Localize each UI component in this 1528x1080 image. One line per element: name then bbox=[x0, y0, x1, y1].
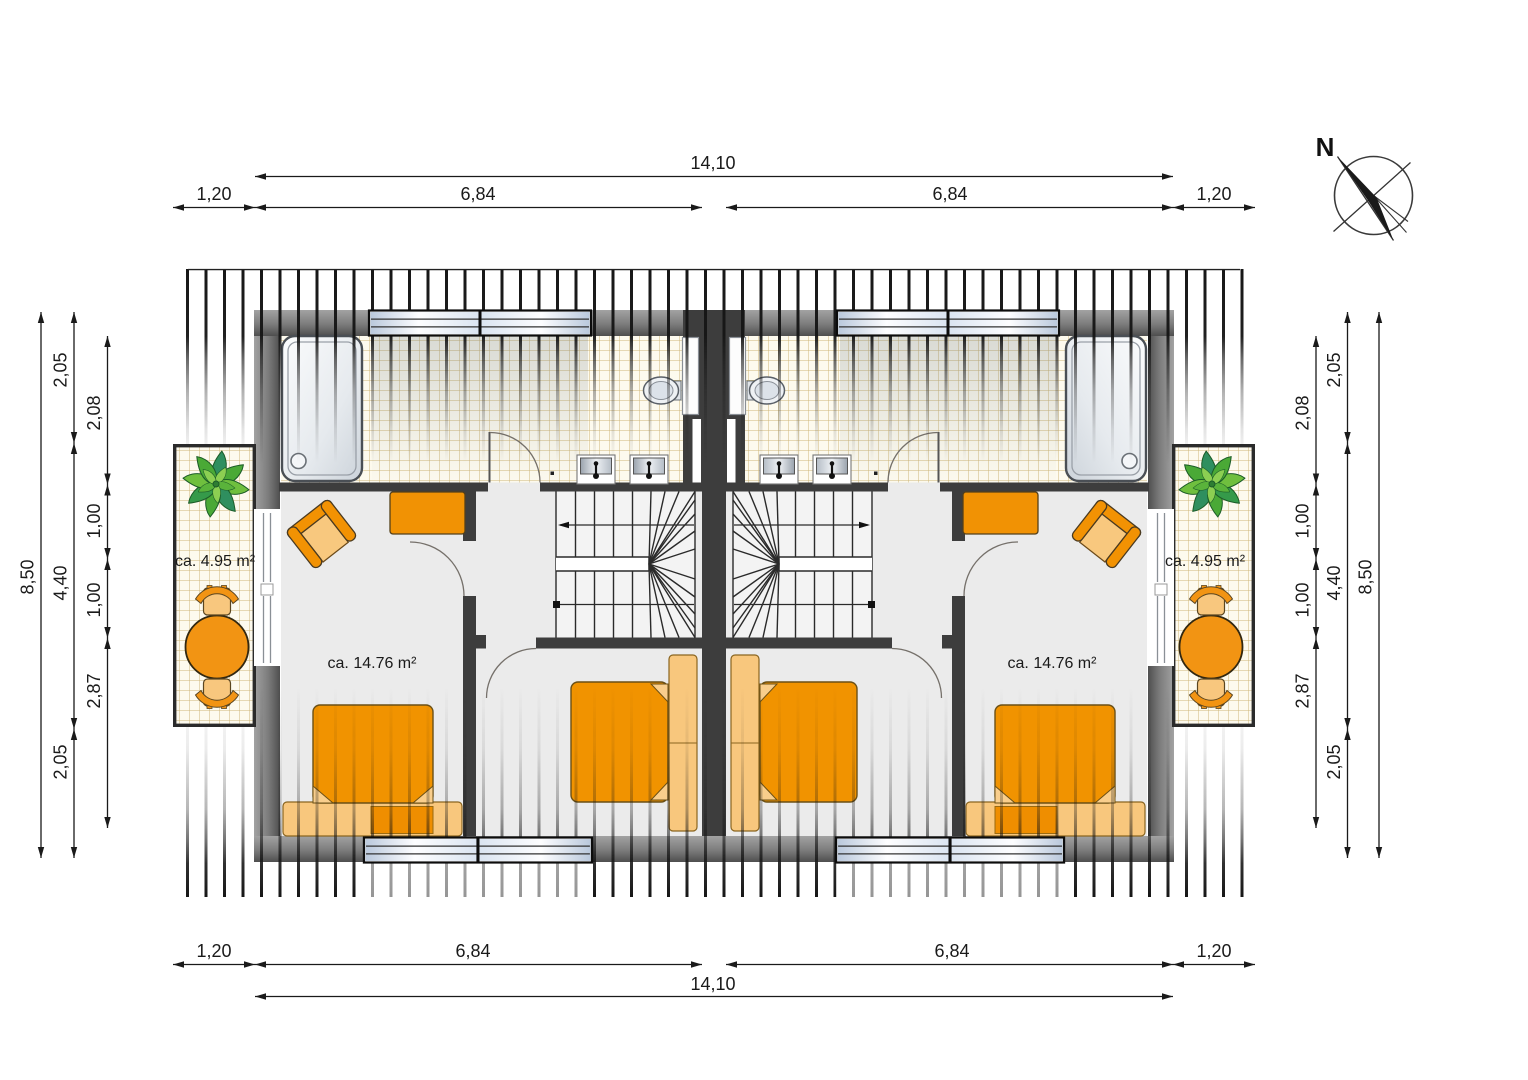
svg-text:2,87: 2,87 bbox=[84, 673, 104, 708]
svg-text:N: N bbox=[1316, 132, 1335, 162]
svg-text:6,84: 6,84 bbox=[932, 184, 967, 204]
svg-text:1,00: 1,00 bbox=[1293, 582, 1313, 617]
svg-text:2,08: 2,08 bbox=[84, 395, 104, 430]
svg-text:2,05: 2,05 bbox=[51, 352, 71, 387]
svg-text:6,84: 6,84 bbox=[455, 941, 490, 961]
svg-text:1,20: 1,20 bbox=[196, 184, 231, 204]
svg-text:8,50: 8,50 bbox=[1356, 559, 1376, 594]
svg-text:2,87: 2,87 bbox=[1293, 673, 1313, 708]
svg-text:ca. 4.95 m²: ca. 4.95 m² bbox=[1165, 553, 1246, 570]
svg-text:1,20: 1,20 bbox=[196, 941, 231, 961]
svg-text:14,10: 14,10 bbox=[690, 153, 735, 173]
svg-text:2,05: 2,05 bbox=[51, 744, 71, 779]
svg-text:2,08: 2,08 bbox=[1293, 395, 1313, 430]
svg-text:6,84: 6,84 bbox=[460, 184, 495, 204]
svg-text:6,84: 6,84 bbox=[934, 941, 969, 961]
svg-text:ca. 14.76 m²: ca. 14.76 m² bbox=[1008, 655, 1098, 672]
svg-text:1,00: 1,00 bbox=[1293, 503, 1313, 538]
svg-text:ca. 14.76 m²: ca. 14.76 m² bbox=[328, 655, 418, 672]
svg-text:8,50: 8,50 bbox=[18, 559, 38, 594]
svg-text:14,10: 14,10 bbox=[690, 974, 735, 994]
svg-text:1,00: 1,00 bbox=[84, 503, 104, 538]
svg-text:2,05: 2,05 bbox=[1324, 352, 1344, 387]
svg-text:1,20: 1,20 bbox=[1196, 941, 1231, 961]
svg-text:1,20: 1,20 bbox=[1196, 184, 1231, 204]
svg-text:4,40: 4,40 bbox=[1324, 565, 1344, 600]
svg-text:1,00: 1,00 bbox=[84, 582, 104, 617]
svg-text:ca. 4.95 m²: ca. 4.95 m² bbox=[175, 553, 256, 570]
svg-text:4,40: 4,40 bbox=[51, 565, 71, 600]
svg-text:2,05: 2,05 bbox=[1324, 744, 1344, 779]
